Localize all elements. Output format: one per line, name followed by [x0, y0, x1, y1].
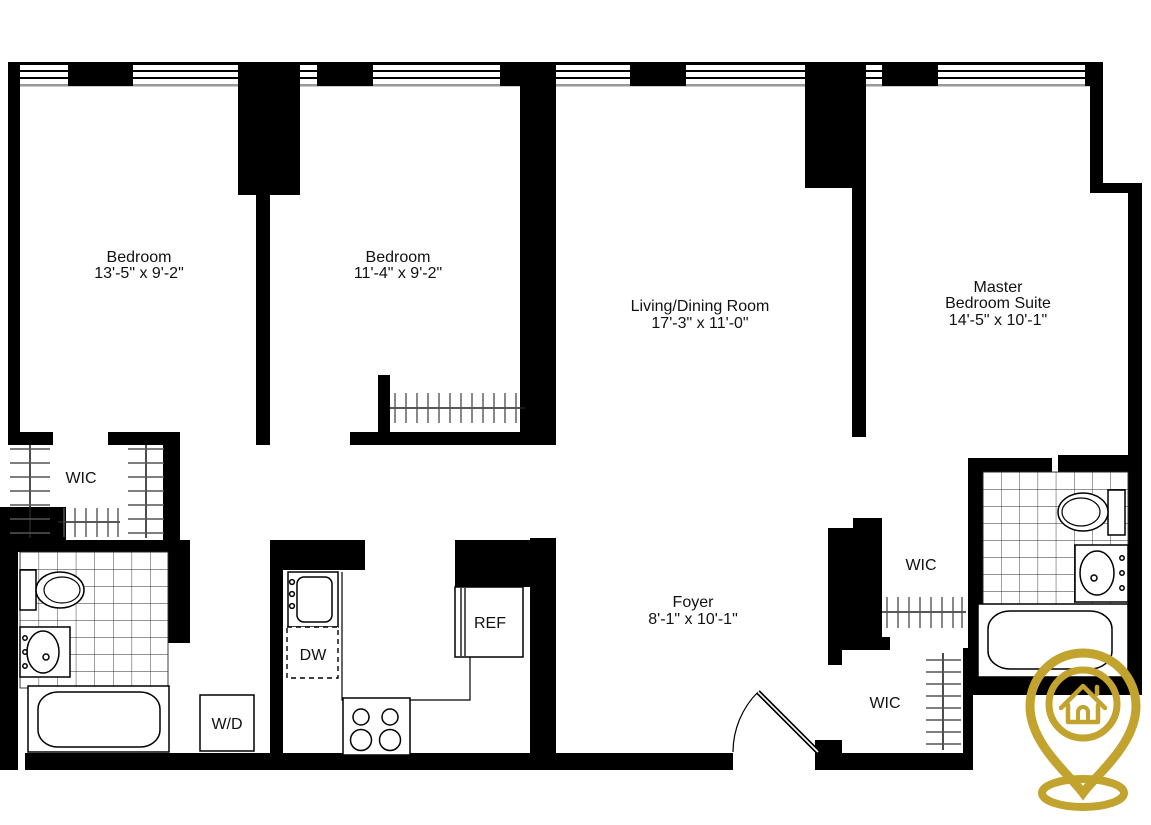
bathroom-1	[20, 552, 169, 752]
bathtub-icon	[28, 686, 169, 752]
walls	[0, 86, 1142, 770]
wall-segment	[270, 540, 283, 770]
window-band	[8, 62, 1103, 87]
wall-segment	[8, 86, 20, 445]
wall-pier	[805, 62, 866, 86]
wic-left-label: WIC	[65, 470, 96, 487]
bedroom1-dims: 13'-5" x 9'-2"	[94, 265, 184, 282]
floor-plan-page: Bedroom 13'-5" x 9'-2" Bedroom 11'-4" x …	[0, 0, 1151, 825]
wall-segment	[815, 753, 973, 770]
wall-segment	[8, 432, 53, 445]
wall-segment	[256, 195, 270, 445]
bedroom2-dims: 11'-4" x 9'-2"	[354, 265, 442, 282]
wall-pier	[1085, 62, 1103, 86]
wall-segment	[815, 740, 842, 753]
entry-door	[733, 692, 818, 752]
washer-dryer-label: W/D	[211, 716, 242, 733]
wall-pier	[68, 62, 133, 86]
wall-segment	[963, 648, 973, 755]
foyer-name: Foyer	[673, 594, 715, 611]
sink-vanity-icon	[20, 627, 70, 677]
wall-pier	[882, 62, 938, 86]
master-bathroom	[978, 472, 1128, 677]
door-swing-arc	[733, 692, 758, 752]
wic-master-upper-label: WIC	[905, 557, 936, 574]
wall-segment	[163, 432, 180, 540]
bedroom1-name: Bedroom	[107, 249, 172, 266]
wall-segment	[0, 540, 18, 770]
wall-segment	[1058, 455, 1142, 472]
wic-master-lower-rod	[926, 653, 961, 750]
living-name: Living/Dining Room	[631, 298, 770, 315]
wall-segment	[805, 86, 866, 188]
wall-segment	[1090, 86, 1103, 183]
floor-plan-drawing: Bedroom 13'-5" x 9'-2" Bedroom 11'-4" x …	[0, 0, 1151, 825]
wall-pier	[630, 62, 686, 86]
master-dims: 14'-5" x 10'-1"	[949, 312, 1047, 329]
wall-segment	[1128, 193, 1142, 695]
wall-pier	[8, 62, 20, 86]
house-pin-logo-icon	[1030, 653, 1136, 807]
wall-segment	[278, 540, 365, 570]
dishwasher-label: DW	[300, 647, 328, 664]
bedroom2-name: Bedroom	[366, 249, 431, 266]
wall-segment	[108, 432, 180, 445]
wall-segment	[0, 540, 190, 552]
wall-segment	[828, 528, 882, 637]
kitchen-sink-icon	[288, 572, 338, 627]
wall-segment	[1090, 183, 1142, 193]
wall-segment	[520, 86, 556, 440]
wic-master-lower-label: WIC	[869, 695, 900, 712]
wic-master-upper-rod	[882, 597, 966, 628]
wall-pier	[500, 62, 556, 86]
master-name-line2: Bedroom Suite	[945, 295, 1051, 312]
bedroom2-closet-rod	[390, 393, 525, 423]
sink-vanity-icon	[1075, 545, 1128, 602]
wall-segment	[455, 540, 540, 587]
wall-segment	[350, 432, 556, 445]
labels: Bedroom 13'-5" x 9'-2" Bedroom 11'-4" x …	[65, 249, 1051, 733]
wall-pier	[238, 62, 300, 86]
wall-segment	[168, 540, 190, 643]
wall-segment	[852, 188, 866, 437]
stove-icon	[343, 698, 410, 755]
door-leaf-inner	[758, 692, 818, 752]
wall-segment	[0, 507, 66, 540]
wall-segment	[968, 458, 1052, 472]
wall-segment	[238, 86, 300, 195]
foyer-dims: 8'-1" x 10'-1"	[648, 611, 738, 628]
master-name-line1: Master	[974, 279, 1024, 296]
wall-segment	[828, 637, 890, 650]
counter-edge	[342, 572, 470, 700]
wall-segment	[378, 375, 390, 432]
living-dims: 17'-3" x 11'-0"	[651, 315, 748, 332]
wall-segment	[853, 518, 882, 540]
toilet-icon	[20, 570, 84, 610]
refrigerator-label: REF	[474, 615, 506, 632]
wall-pier	[317, 62, 373, 86]
